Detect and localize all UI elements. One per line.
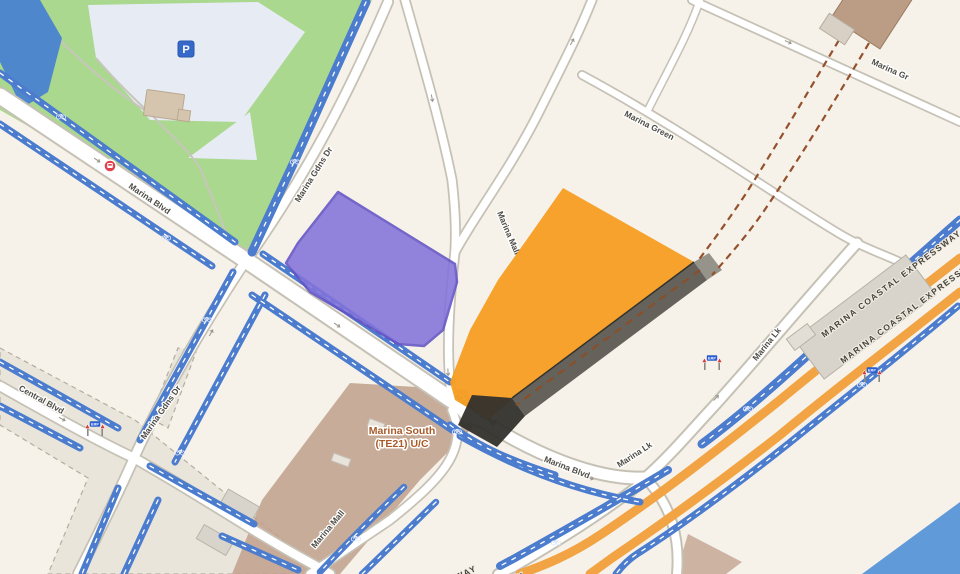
bus-stop-icon[interactable] <box>104 160 116 172</box>
station-label-line2: (TE21) U/C <box>375 438 429 450</box>
svg-text:ERP: ERP <box>708 356 716 360</box>
station-label-marina-south: Marina South (TE21) U/C <box>369 425 436 450</box>
svg-text:ERP: ERP <box>91 422 99 426</box>
map-canvas[interactable]: Marina Blvd Marina Blvd Marina Blvd Mari… <box>0 0 960 574</box>
svg-text:ERP: ERP <box>868 368 876 372</box>
building <box>177 109 190 122</box>
parking-icon[interactable]: P <box>178 41 194 57</box>
map-viewport[interactable]: Marina Blvd Marina Blvd Marina Blvd Mari… <box>0 0 960 574</box>
svg-text:P: P <box>182 44 189 56</box>
station-label-line1: Marina South <box>369 425 436 437</box>
